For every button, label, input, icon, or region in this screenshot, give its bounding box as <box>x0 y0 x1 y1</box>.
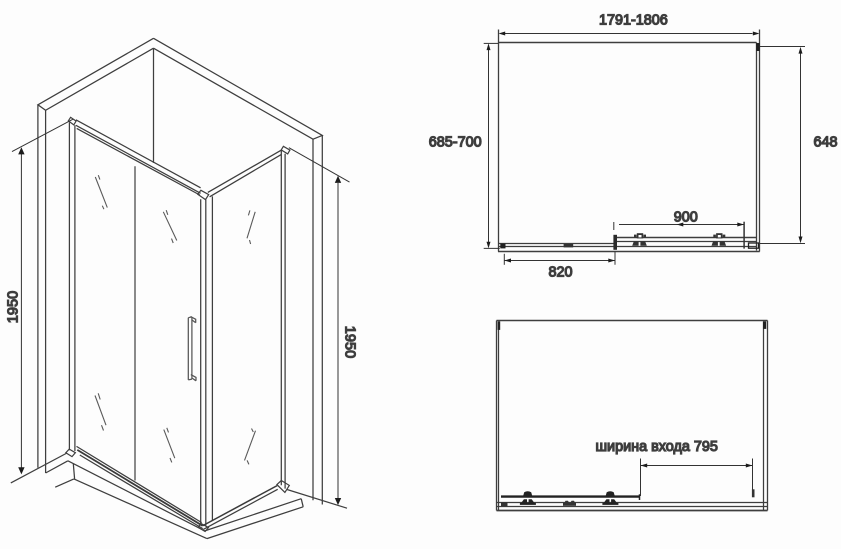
svg-text:1950: 1950 <box>6 291 22 323</box>
svg-text:685-700: 685-700 <box>429 134 482 150</box>
svg-text:820: 820 <box>548 264 572 280</box>
svg-text:648: 648 <box>814 134 838 150</box>
svg-text:1791-1806: 1791-1806 <box>599 13 668 29</box>
svg-text:1950: 1950 <box>342 326 358 358</box>
svg-text:ширина входа 795: ширина входа 795 <box>596 439 718 455</box>
svg-text:900: 900 <box>674 209 698 225</box>
